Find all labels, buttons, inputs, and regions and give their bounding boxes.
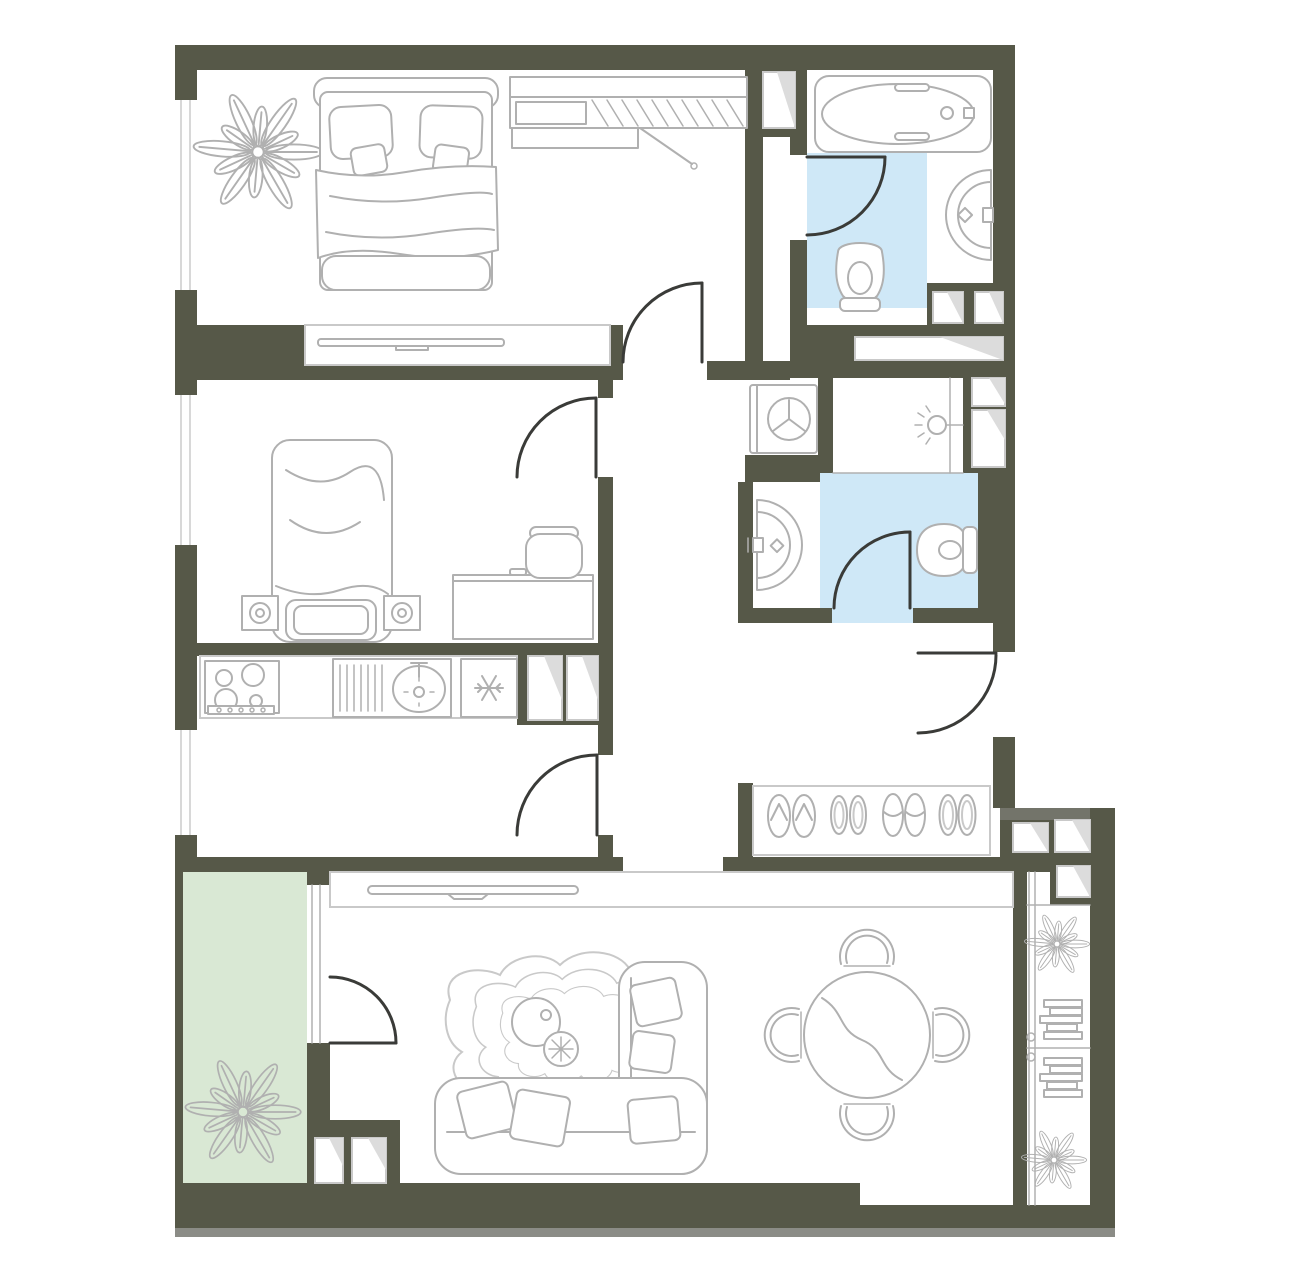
dining-set	[765, 930, 970, 1141]
tv-console	[330, 872, 1013, 907]
living-room	[330, 872, 1013, 1174]
tv-shelf	[305, 325, 610, 365]
bedroom-secondary	[242, 398, 596, 642]
speaker-icon	[384, 596, 420, 630]
vent-shaft-icon	[972, 378, 1005, 406]
entrance-door-icon	[918, 653, 996, 733]
bathtub-icon	[815, 76, 991, 152]
vent-shaft-icon	[567, 656, 598, 720]
vent-shaft-icon	[1055, 820, 1090, 852]
shoe-rack	[753, 786, 990, 855]
plant-icon	[193, 92, 323, 212]
side-table-icon	[544, 1032, 578, 1066]
window-icon	[181, 730, 190, 835]
shelf-stack-icon	[1040, 1000, 1082, 1039]
shower-room	[833, 378, 963, 473]
vent-shaft-icon	[1057, 866, 1090, 897]
toilet-icon	[836, 243, 884, 311]
balcony-left-floor	[183, 872, 307, 1183]
vent-shaft-icon	[972, 410, 1005, 467]
vent-shaft-icon	[315, 1138, 343, 1183]
double-bed-icon	[314, 78, 498, 290]
desk-icon	[453, 569, 593, 639]
kitchen-sink-icon	[333, 659, 451, 717]
shower-head-icon	[915, 406, 963, 444]
dining-table-icon	[804, 972, 930, 1098]
door-swing-icon	[517, 755, 597, 835]
single-bed-icon	[272, 440, 392, 642]
vent-duct	[855, 337, 1003, 360]
toilet-icon	[917, 524, 977, 576]
vent-shaft-icon	[763, 72, 795, 128]
vent-shaft-icon	[1013, 823, 1048, 852]
plant-icon	[1021, 1130, 1086, 1191]
door-swing-icon	[517, 398, 596, 477]
vent-shaft-icon	[933, 292, 963, 323]
vent-shaft-icon	[528, 656, 562, 720]
window-icon	[181, 100, 190, 290]
entry-hall	[753, 653, 996, 855]
speaker-icon	[242, 596, 278, 630]
floor-plan	[0, 0, 1290, 1280]
bedroom-primary	[193, 77, 747, 365]
pedestal-sink-icon	[748, 500, 802, 590]
floor-plan-drawing	[0, 0, 1290, 1280]
shelf-stack-icon	[1040, 1058, 1082, 1097]
wardrobe-icon	[510, 77, 747, 169]
vent-shaft-icon	[352, 1138, 386, 1183]
plant-icon	[1024, 914, 1089, 975]
fridge-icon	[461, 659, 517, 717]
washing-machine-icon	[750, 385, 817, 453]
window-icon	[181, 395, 190, 545]
pedestal-sink-icon	[946, 170, 993, 260]
desk-chair-icon	[526, 527, 582, 578]
vent-shaft-icon	[975, 292, 1003, 323]
balcony-door-icon	[330, 977, 396, 1043]
stove-icon	[205, 661, 279, 714]
balcony-right	[1021, 914, 1089, 1191]
door-swing-icon	[623, 283, 702, 362]
